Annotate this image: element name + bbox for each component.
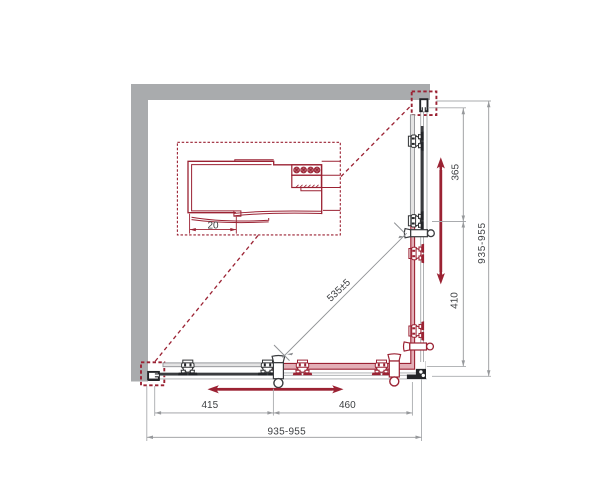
svg-text:935-955: 935-955 (267, 426, 306, 437)
svg-text:365: 365 (450, 164, 461, 181)
svg-text:460: 460 (339, 400, 356, 411)
svg-text:410: 410 (450, 292, 461, 309)
svg-text:20: 20 (207, 220, 219, 231)
svg-text:935-955: 935-955 (477, 222, 488, 264)
svg-text:415: 415 (201, 400, 218, 411)
